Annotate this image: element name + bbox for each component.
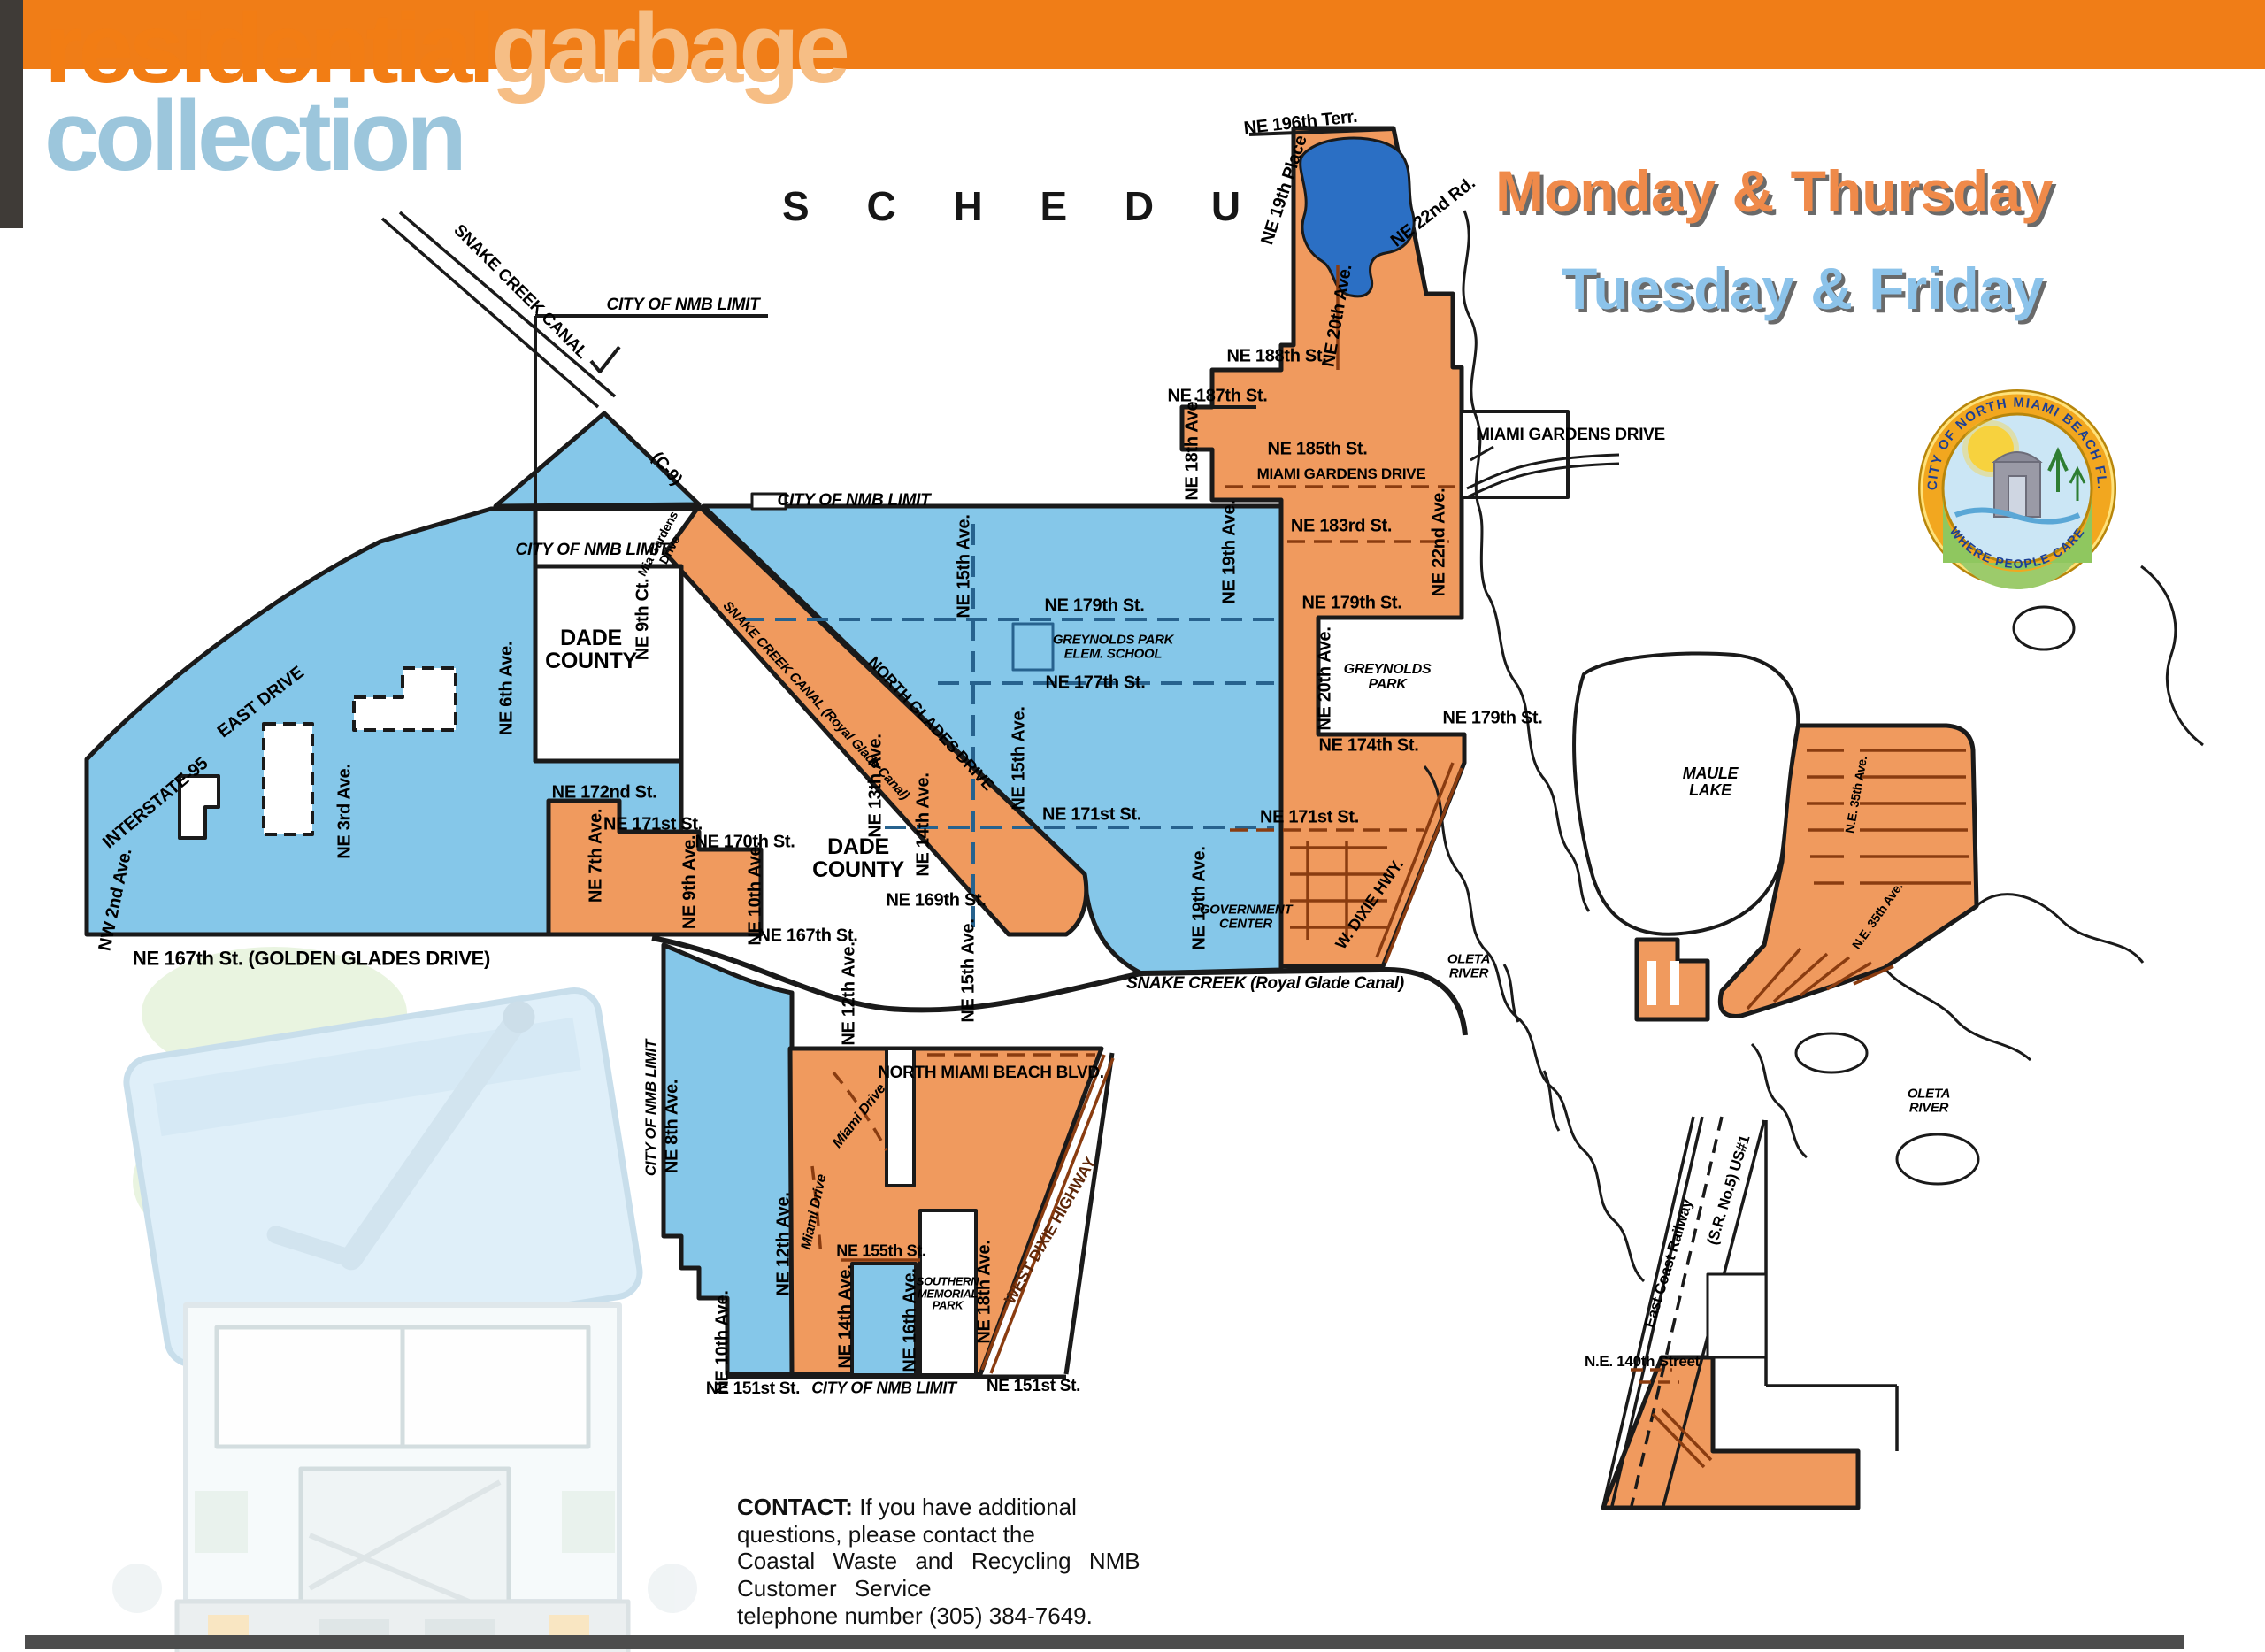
map-label: NE 171st St. <box>603 816 703 834</box>
map-label: GREYNOLDS PARK ELEM. SCHOOL <box>1053 633 1173 661</box>
map-label: N.E. 140th Street <box>1585 1354 1700 1370</box>
map-label: NE 151st St. <box>987 1378 1080 1395</box>
map-label: NE 14th Ave. <box>915 772 933 876</box>
map-label: W. DIXIE HWY. <box>1332 857 1407 952</box>
map-label: NE 183rd St. <box>1291 518 1392 536</box>
map-label: NE 12th Ave. <box>775 1192 794 1295</box>
map-label: NE 22nd Rd. <box>1387 173 1478 250</box>
map-label: NE 18th Ave. <box>976 1240 994 1343</box>
map-label: NE 171st St. <box>1260 809 1359 827</box>
map-label: NE 19th Place <box>1258 134 1311 248</box>
map-label: N.E. 35th Ave. <box>1843 755 1870 834</box>
map-label: (C-9) <box>648 449 685 489</box>
map-label: Miami Drive <box>800 1173 830 1251</box>
map-label: NE 19th Ave. <box>1221 500 1240 603</box>
map-label: CITY OF NMB LIMIT <box>643 1040 659 1176</box>
map-label: EAST DRIVE <box>214 664 307 742</box>
map-label: NE 167th St. <box>757 927 857 946</box>
map-label: SOUTHERN MEMORIAL PARK <box>917 1276 979 1312</box>
map-label: NE 185th St. <box>1267 441 1367 459</box>
map-label: NE 174th St. <box>1318 737 1418 756</box>
map-label: CITY OF NMB LIMIT <box>778 492 931 510</box>
map-label: GOVERNMENT CENTER <box>1200 903 1293 931</box>
contact-block: CONTACT: If you have additional question… <box>737 1494 1172 1629</box>
map-label: NE 179th St. <box>1442 710 1542 728</box>
map-label: NE 14th Ave. <box>837 1264 856 1368</box>
map-label: WEST DIXIE HIGHWAY <box>1002 1155 1099 1307</box>
map-label: INTERSTATE-95 <box>100 755 212 853</box>
map-label: OLETA RIVER <box>1447 952 1490 980</box>
contact-label: CONTACT: <box>737 1494 853 1520</box>
map-label: SNAKE CREEK (Royal Glade Canal) <box>1126 975 1404 993</box>
map-label: NE 7th Ave. <box>587 809 606 903</box>
map-label: CITY OF NMB LIMIT <box>607 296 760 314</box>
map-label: NW 2nd Ave. <box>96 847 136 952</box>
map-label: NE 188th St. <box>1226 348 1326 366</box>
map-label: NE 172nd St. <box>552 784 657 803</box>
map-label: NE 177th St. <box>1045 674 1145 693</box>
map-label: DADE COUNTY <box>812 835 904 882</box>
map-label: MIAMI GARDENS DRIVE <box>1476 426 1665 444</box>
map-label: NE 167th St. (GOLDEN GLADES DRIVE) <box>133 948 490 968</box>
page: residentialgarbage collection S C H E D … <box>0 0 2265 1652</box>
map-label: NE 15th Ave. <box>956 514 974 618</box>
map-label: NE 15th Ave. <box>1010 706 1029 810</box>
map-label: NE 9th Ct. <box>634 579 653 661</box>
map-label: MAULE LAKE <box>1683 765 1739 799</box>
map-label: NE 18th Ave. <box>1184 396 1202 500</box>
map-label: N.E. 35th Ave. <box>1850 880 1906 952</box>
map-label: NE 3rd Ave. <box>336 764 355 858</box>
map-label: East Coast Railway <box>1641 1197 1695 1329</box>
map-label: NE 15th Ave. <box>960 918 979 1022</box>
map-label: SNAKE CREEK CANAL (Royal Glade Canal) <box>720 599 911 803</box>
map-label: NE 179th St. <box>1301 595 1401 613</box>
map-label: NE 10th Ave. <box>714 1290 733 1394</box>
map-label: MIAMI GARDENS DRIVE <box>1257 466 1426 482</box>
map-label: (S.R. No.5) US#1 <box>1705 1133 1754 1247</box>
map-label: NE 22nd Ave. <box>1431 488 1449 597</box>
map-label: NE 171st St. <box>1042 806 1141 825</box>
bottom-dark-bar <box>25 1635 2184 1649</box>
map-label: NE 6th Ave. <box>498 642 517 735</box>
contact-line2: Coastal Waste and Recycling NMB Customer… <box>737 1548 1172 1602</box>
map-label: GREYNOLDS PARK <box>1344 663 1432 693</box>
map-label: NE 196th Terr. <box>1243 108 1358 138</box>
map-labels: NE 196th Terr.NE 19th PlaceNE 22nd Rd.NE… <box>0 0 2265 1652</box>
map-label: NE 155th St. <box>836 1243 925 1260</box>
map-label: NE 179th St. <box>1044 597 1144 616</box>
map-label: Miami Drive <box>831 1082 890 1152</box>
map-label: DADE COUNTY <box>545 626 637 673</box>
map-label: NE 20th Ave. <box>1317 626 1335 730</box>
map-label: OLETA RIVER <box>1908 1087 1950 1115</box>
map-label: NE 169th St. <box>886 892 986 911</box>
map-label: CITY OF NMB LIMIT <box>811 1380 956 1397</box>
map-label: NE 12th Ave. <box>841 941 859 1045</box>
map-label: NE 8th Ave. <box>664 1080 682 1173</box>
map-label: NE 19th Ave. <box>1191 846 1209 949</box>
contact-line3: telephone number (305) 384-7649. <box>737 1602 1172 1630</box>
map-label: SNAKE CREEK CANAL <box>449 221 590 362</box>
map-label: NORTH MIAMI BEACH BLVD. <box>878 1064 1104 1082</box>
